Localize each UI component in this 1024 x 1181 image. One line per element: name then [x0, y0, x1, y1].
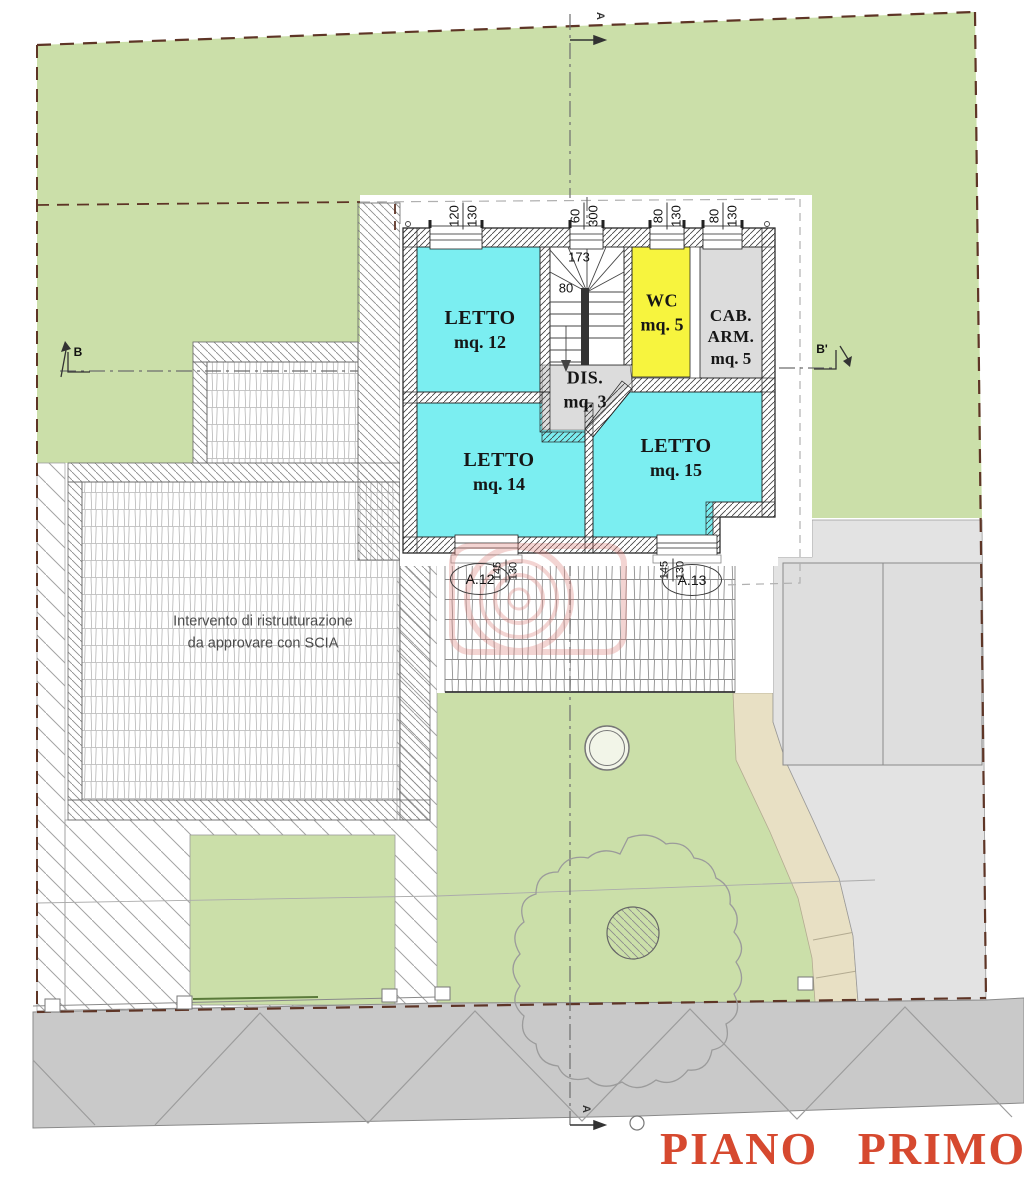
dim-width: 80	[708, 209, 721, 223]
renovation-note: Intervento di ristrutturazione da approv…	[173, 611, 353, 655]
room-area: mq. 12	[444, 331, 515, 355]
dim-height: 130	[509, 562, 520, 580]
room-label-dis: DIS. mq. 3	[563, 366, 606, 414]
room-area: mq. 5	[640, 313, 683, 337]
survey-point-icon	[406, 222, 411, 227]
dim-line	[584, 203, 585, 230]
room-name: LETTO	[444, 305, 515, 331]
site-plan-drawing	[0, 0, 1024, 1181]
dim-height: 300	[587, 205, 600, 227]
room-name: CAB.	[708, 305, 755, 326]
dim-stair-run: 80	[559, 281, 573, 296]
room-label-letto12: LETTO mq. 12	[444, 305, 515, 355]
stair-wall	[581, 288, 589, 365]
note-line-1: Intervento di ristrutturazione	[173, 611, 353, 633]
opening-label: A.13	[678, 572, 707, 588]
room-label-letto15: LETTO mq. 15	[640, 433, 711, 483]
dim-height: 130	[726, 205, 739, 227]
room-label-cab-arm: CAB. ARM. mq. 5	[708, 305, 755, 369]
room-label-wc: WC mq. 5	[640, 289, 683, 337]
room-area: mq. 14	[463, 473, 534, 497]
room-area: mq. 3	[563, 390, 606, 414]
dim-width: 120	[448, 205, 461, 227]
dim-width: 60	[569, 209, 582, 223]
room-name: LETTO	[640, 433, 711, 459]
green-lawn-rect	[190, 835, 395, 1005]
room-name: ARM.	[708, 326, 755, 347]
room-area: mq. 5	[708, 348, 755, 369]
note-line-2: da approvare con SCIA	[173, 633, 353, 655]
page-title: PIANO PRIMO	[660, 1122, 1024, 1175]
section-label-b: B	[74, 345, 83, 359]
dim-window-3: 80 130	[652, 203, 683, 230]
dim-window-1: 120 130	[448, 203, 479, 230]
section-label-b-prime: B'	[816, 342, 828, 356]
dim-line	[463, 203, 464, 230]
opening-label: A.12	[466, 571, 495, 587]
road	[33, 997, 1024, 1128]
floor-plan-canvas: LETTO mq. 12 LETTO mq. 14 LETTO mq. 15 W…	[0, 0, 1024, 1181]
tree-trunk-icon	[607, 907, 659, 959]
room-name: LETTO	[463, 447, 534, 473]
room-name: DIS.	[563, 366, 606, 390]
survey-point-icon	[765, 222, 770, 227]
room-area: mq. 15	[640, 459, 711, 483]
well-icon	[585, 726, 629, 770]
dim-width: 80	[652, 209, 665, 223]
section-label-a-bottom: A	[580, 1105, 592, 1113]
dim-window-4: 80 130	[708, 203, 739, 230]
dim-line	[667, 203, 668, 230]
opening-tag-a13: A.13	[662, 564, 722, 596]
manhole-icon	[630, 1116, 644, 1130]
section-label-a-top: A	[594, 12, 606, 20]
dim-stair-width: 173	[568, 250, 590, 265]
opening-tag-a12: A.12	[450, 563, 510, 595]
room-name: WC	[640, 289, 683, 313]
dim-height: 130	[466, 205, 479, 227]
dim-window-2: 60 300	[569, 203, 600, 230]
dim-line	[723, 203, 724, 230]
room-label-letto14: LETTO mq. 14	[463, 447, 534, 497]
dim-height: 130	[670, 205, 683, 227]
